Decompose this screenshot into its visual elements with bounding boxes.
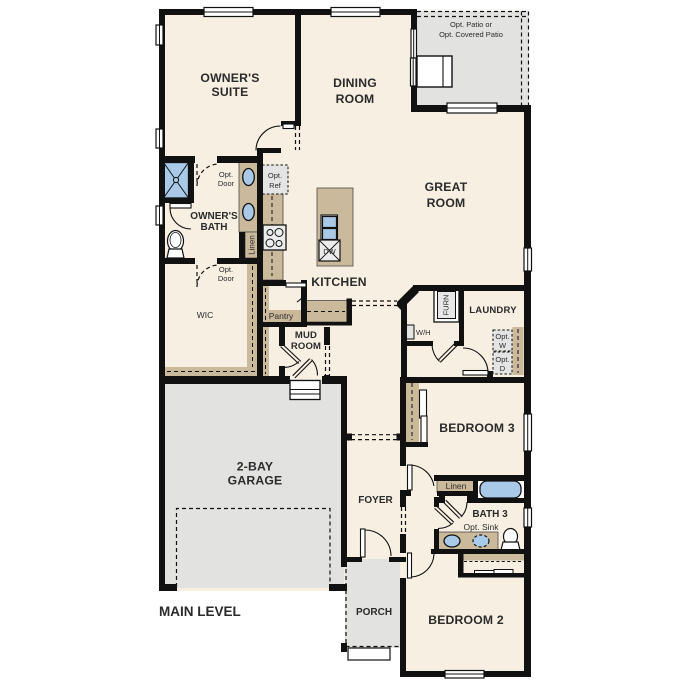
svg-text:GREAT: GREAT: [425, 180, 468, 194]
svg-text:SUITE: SUITE: [212, 85, 249, 99]
svg-text:OWNER'S: OWNER'S: [190, 211, 238, 222]
svg-text:Opt. Covered Patio: Opt. Covered Patio: [439, 30, 503, 39]
svg-text:DINING: DINING: [333, 76, 377, 90]
svg-text:Opt. Sink: Opt. Sink: [464, 522, 500, 532]
svg-text:ROOM: ROOM: [336, 92, 375, 106]
svg-text:MUD: MUD: [295, 330, 317, 341]
svg-text:FURN: FURN: [441, 295, 450, 316]
svg-text:2-BAY: 2-BAY: [237, 460, 273, 474]
svg-text:Opt.: Opt.: [219, 170, 233, 179]
svg-text:BATH: BATH: [200, 222, 227, 233]
svg-text:Door: Door: [218, 274, 235, 283]
svg-text:PORCH: PORCH: [356, 607, 392, 618]
svg-text:Opt.: Opt.: [495, 355, 509, 364]
svg-text:MAIN LEVEL: MAIN LEVEL: [159, 604, 241, 619]
svg-text:Linen: Linen: [446, 481, 467, 491]
svg-text:LAUNDRY: LAUNDRY: [469, 305, 517, 316]
svg-text:OWNER'S: OWNER'S: [200, 71, 259, 85]
svg-text:BATH 3: BATH 3: [472, 509, 508, 520]
svg-text:BEDROOM 3: BEDROOM 3: [439, 421, 515, 435]
svg-text:Linen: Linen: [248, 235, 257, 255]
svg-text:BEDROOM 2: BEDROOM 2: [428, 613, 504, 627]
svg-text:Opt.: Opt.: [219, 265, 233, 274]
svg-text:GARAGE: GARAGE: [228, 474, 283, 488]
svg-text:ROOM: ROOM: [427, 196, 466, 210]
svg-text:Opt.: Opt.: [268, 171, 282, 180]
svg-text:Pantry: Pantry: [269, 311, 294, 321]
svg-text:W/H: W/H: [416, 328, 431, 337]
svg-text:Opt.: Opt.: [495, 332, 509, 341]
svg-text:Ref: Ref: [269, 181, 282, 190]
svg-text:DW: DW: [323, 247, 336, 256]
svg-text:ROOM: ROOM: [291, 341, 321, 352]
svg-text:Door: Door: [218, 179, 235, 188]
svg-text:FOYER: FOYER: [358, 495, 393, 506]
svg-text:W: W: [499, 341, 507, 350]
svg-text:D: D: [500, 364, 506, 373]
svg-text:WIC: WIC: [197, 310, 214, 320]
svg-text:KITCHEN: KITCHEN: [311, 275, 367, 289]
svg-text:Opt. Patio or: Opt. Patio or: [450, 20, 493, 29]
